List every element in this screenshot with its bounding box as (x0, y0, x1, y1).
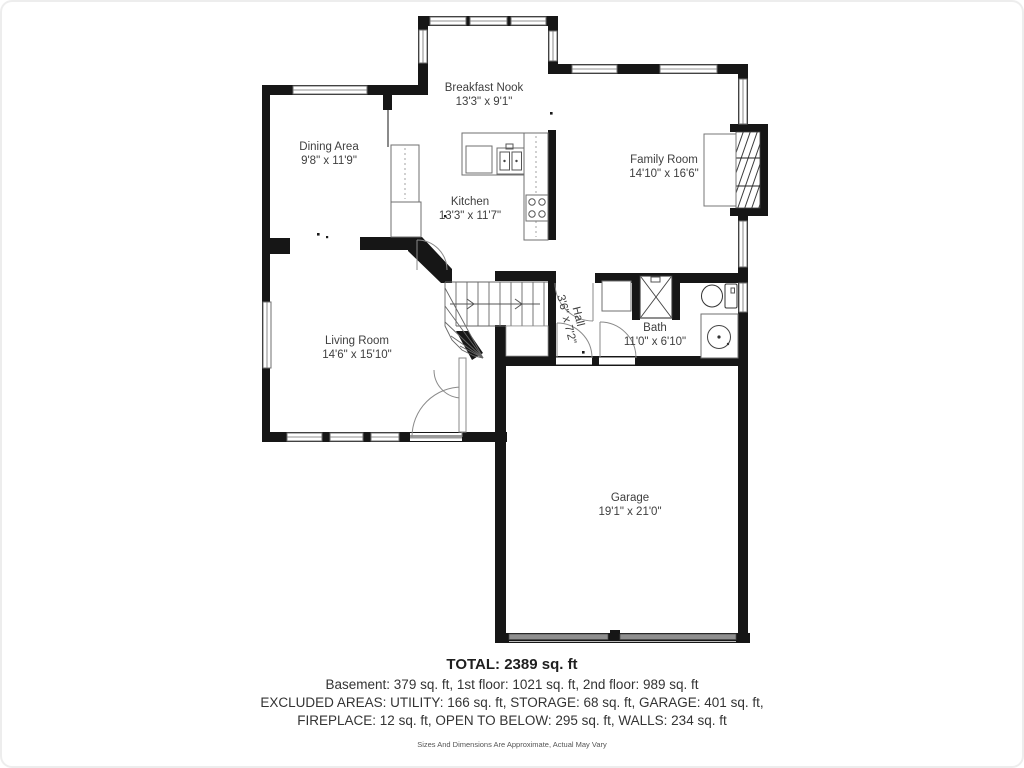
room-label-breakfast-nook: Breakfast Nook (445, 82, 524, 94)
room-dims-garage: 19'1" x 21'0" (598, 506, 661, 518)
shower (640, 276, 672, 318)
refrigerator (391, 202, 421, 237)
window (470, 17, 507, 25)
room-label-family-room: Family Room (630, 154, 698, 166)
kitchen-fixtures (391, 133, 548, 240)
room-label-bath: Bath (643, 322, 667, 334)
room-dims-kitchen: 13'3" x 11'7" (439, 210, 501, 222)
kitchen-cabinet (466, 146, 492, 173)
room-dims-living-room: 14'6" x 15'10" (322, 349, 391, 361)
summary-excluded-2: FIREPLACE: 12 sq. ft, OPEN TO BELOW: 295… (0, 712, 1024, 730)
window (739, 283, 747, 312)
room-dims-breakfast-nook: 13'3" x 9'1" (456, 96, 513, 108)
floor-plan-canvas: Breakfast Nook 13'3" x 9'1" Dining Area … (0, 0, 1024, 768)
room-label-garage: Garage (611, 492, 649, 504)
fireplace (704, 124, 788, 216)
summary-floors: Basement: 379 sq. ft, 1st floor: 1021 sq… (0, 676, 1024, 694)
window (739, 79, 747, 124)
toilet (702, 284, 738, 308)
window (511, 17, 546, 25)
window (330, 433, 363, 441)
room-dims-bath: 11'0" x 6'10" (624, 336, 686, 348)
entry-door-swing-2 (434, 370, 462, 398)
summary-excluded-1: EXCLUDED AREAS: UTILITY: 166 sq. ft, STO… (0, 694, 1024, 712)
hall-garage-opening (556, 357, 592, 365)
vanity-sink (701, 314, 738, 358)
summary-total: TOTAL: 2389 sq. ft (0, 656, 1024, 673)
window (430, 17, 466, 25)
window (287, 433, 322, 441)
room-label-hall-group: Hall 3'6" x 7'2" (554, 291, 589, 346)
kitchen-sink (497, 144, 524, 174)
garage-door-right (620, 634, 736, 640)
summary-block: TOTAL: 2389 sq. ft Basement: 379 sq. ft,… (0, 656, 1024, 749)
room-label-kitchen: Kitchen (451, 196, 489, 208)
window (263, 302, 271, 368)
floor-plan-page: Breakfast Nook 13'3" x 9'1" Dining Area … (0, 0, 1024, 768)
window (371, 433, 399, 441)
understair-closet (506, 326, 548, 356)
fireplace-hearth (704, 134, 736, 206)
window (293, 86, 367, 94)
room-label-dining-area: Dining Area (299, 141, 359, 153)
room-dims-family-room: 14'10" x 16'6" (629, 168, 698, 180)
garage-door-left (509, 634, 608, 640)
window (549, 31, 557, 61)
summary-disclaimer: Sizes And Dimensions Are Approximate, Ac… (0, 740, 1024, 749)
room-label-living-room: Living Room (325, 335, 389, 347)
entry-half-wall (459, 358, 466, 432)
window (739, 221, 747, 267)
cooktop (526, 195, 548, 221)
bath-door-opening (599, 357, 635, 365)
window (419, 30, 427, 63)
entry-door-swing (412, 387, 462, 437)
room-dims-dining-area: 9'8" x 11'9" (301, 155, 357, 167)
entry (459, 358, 466, 432)
window (572, 65, 617, 73)
bath-shelf (602, 281, 631, 311)
window (660, 65, 717, 73)
